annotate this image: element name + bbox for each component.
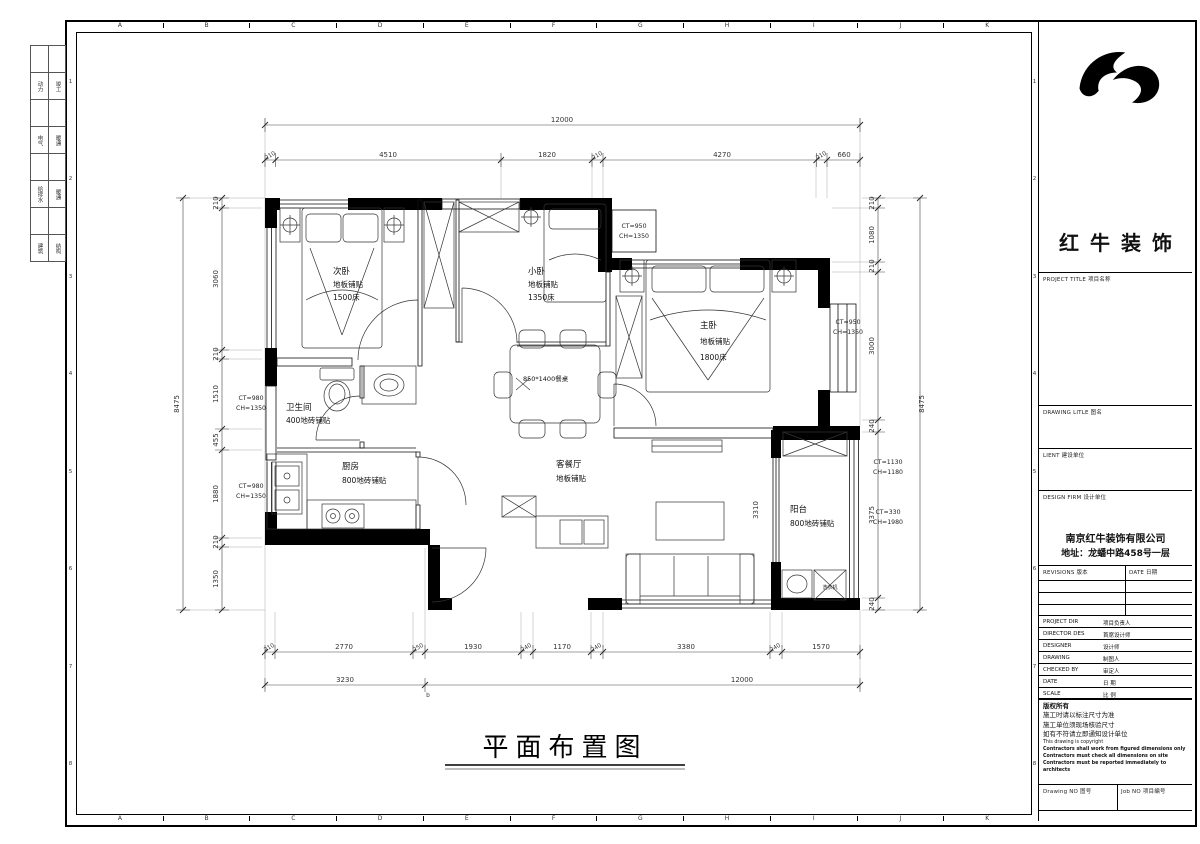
tb-copyright-block: 版权所有施工时请以标注尺寸为准施工单位须现场核验尺寸如有不符请立即通知设计单位T… [1043, 702, 1188, 774]
svg-text:1880: 1880 [212, 485, 220, 503]
tb-staff-row: DRAWING制图人 [1039, 651, 1192, 663]
tb-number-row: Drawing NO 图号 Job NO 项目编号 [1039, 784, 1192, 810]
tb-drawing-title-label: DRAWING LITLE 图名 [1043, 408, 1102, 416]
tb-project-title-label: PROJECT TITLE 项目名称 [1043, 275, 1111, 283]
svg-text:CT=950: CT=950 [835, 319, 860, 326]
tb-client-box: LIENT 建设单位 [1039, 448, 1192, 490]
svg-text:1350床: 1350床 [528, 292, 555, 302]
svg-text:4510: 4510 [379, 151, 397, 159]
svg-text:12000: 12000 [551, 116, 573, 124]
door-secondary-bedroom [358, 300, 418, 360]
tb-staff-row: DATE日 期 [1039, 675, 1192, 687]
door-entry [432, 548, 486, 602]
svg-text:4270: 4270 [713, 151, 731, 159]
tb-drawing-no-label: Drawing NO 图号 [1043, 787, 1091, 795]
tb-staff-label: DATE [1043, 679, 1103, 687]
svg-text:CT=1130: CT=1130 [873, 459, 902, 466]
tb-staff-label: DESIGNER [1043, 643, 1103, 651]
svg-text:3380: 3380 [677, 643, 695, 651]
bed-secondary [280, 208, 404, 348]
tb-copyright-line-zh: 版权所有 [1043, 702, 1188, 711]
svg-text:1500床: 1500床 [333, 292, 360, 302]
svg-text:12000: 12000 [731, 676, 753, 684]
svg-text:3000: 3000 [868, 337, 876, 355]
svg-text:240: 240 [868, 419, 876, 432]
tb-client-label: LIENT 建设单位 [1043, 451, 1084, 459]
svg-text:210: 210 [868, 259, 876, 272]
svg-text:地板铺贴: 地板铺贴 [528, 279, 558, 289]
tb-revision-row [1039, 604, 1192, 615]
tb-copyright-line-en: Contractors must be reported immediately… [1043, 761, 1188, 775]
svg-text:240: 240 [868, 597, 876, 610]
tb-copyright-line-zh: 施工单位须现场核验尺寸 [1043, 721, 1188, 730]
svg-text:1510: 1510 [212, 385, 220, 403]
tb-staff-label: 首席设计师 [1103, 631, 1131, 639]
svg-text:800地砖铺贴: 800地砖铺贴 [342, 475, 387, 485]
svg-text:CH=1350: CH=1350 [619, 233, 649, 240]
svg-text:1570: 1570 [812, 643, 830, 651]
title-block: 红牛装饰 PROJECT TITLE 项目名称 DRAWING LITLE 图名… [1038, 22, 1192, 821]
svg-text:小卧: 小卧 [528, 266, 546, 277]
svg-text:2770: 2770 [335, 643, 353, 651]
tb-staff-label: DRAWING [1043, 655, 1103, 663]
sheet-title: 平面布置图 [445, 733, 685, 769]
svg-text:阳台: 阳台 [790, 504, 807, 515]
svg-text:CH=1980: CH=1980 [873, 519, 903, 526]
svg-text:850*1400餐桌: 850*1400餐桌 [523, 374, 569, 383]
svg-text:1820: 1820 [538, 151, 556, 159]
tb-job-no-label: Job NO 项目编号 [1121, 787, 1166, 795]
svg-text:CH=1350: CH=1350 [236, 493, 266, 500]
svg-text:CH=1180: CH=1180 [873, 469, 903, 476]
tb-copyright-line-zh: 施工时请以标注尺寸为准 [1043, 711, 1188, 720]
tb-project-title-box: PROJECT TITLE 项目名称 [1039, 272, 1192, 405]
svg-text:1080: 1080 [868, 226, 876, 244]
tb-copyright-line-en: This drawing is copyright [1043, 740, 1188, 747]
tb-revisions-header: REVISIONS 版本 DATE 日期 [1039, 565, 1192, 580]
svg-text:客餐厅: 客餐厅 [556, 459, 582, 470]
svg-text:455: 455 [212, 433, 220, 446]
svg-text:210: 210 [212, 347, 220, 360]
svg-text:1350: 1350 [212, 570, 220, 588]
tb-staff-row: PROJECT DIR项目负责人 [1039, 615, 1192, 627]
svg-text:主卧: 主卧 [700, 320, 718, 331]
tb-staff-label: 项目负责人 [1103, 619, 1131, 627]
tb-drawing-title-box: DRAWING LITLE 图名 [1039, 405, 1192, 448]
drawing-sheet: { "sheet": { "grid_letters": ["A","B","C… [0, 0, 1200, 844]
svg-text:210: 210 [212, 535, 220, 548]
svg-text:660: 660 [837, 151, 850, 159]
tb-staff-label: 设计师 [1103, 643, 1120, 651]
svg-text:洗衣机: 洗衣机 [822, 584, 837, 591]
svg-text:CH=1350: CH=1350 [833, 329, 863, 336]
tb-staff-label: CHECKED BY [1043, 667, 1103, 675]
tb-staff-label: 日 期 [1103, 679, 1116, 687]
tb-design-firm-label: DESIGN FIRM 设计单位 [1043, 493, 1106, 501]
svg-text:CH=1350: CH=1350 [236, 405, 266, 412]
tb-staff-label: 审定人 [1103, 667, 1120, 675]
svg-text:CT=980: CT=980 [238, 483, 263, 490]
tb-copyright-line-en: Contractors shall work from figured dime… [1043, 747, 1188, 754]
svg-text:CT=950: CT=950 [621, 223, 646, 230]
door-kitchen [418, 457, 466, 505]
svg-text:卫生间: 卫生间 [286, 402, 312, 413]
tb-staff-label: DIRECTOR DES [1043, 631, 1103, 639]
living-furniture [502, 496, 754, 604]
svg-text:CT=330: CT=330 [875, 509, 900, 516]
floor-plan: 12000 210 4510 1820 210 4270 210 660 210… [0, 0, 1040, 844]
tb-revision-row [1039, 592, 1192, 604]
balcony-fixtures [782, 432, 847, 600]
tb-copyright-line-en: Contractors must check all dimensions on… [1043, 754, 1188, 761]
svg-text:厨房: 厨房 [342, 461, 359, 472]
tb-staff-label: PROJECT DIR [1043, 619, 1103, 627]
svg-text:3060: 3060 [212, 270, 220, 288]
tb-date-label: DATE 日期 [1129, 568, 1157, 576]
doors [316, 288, 656, 602]
svg-text:1800床: 1800床 [700, 352, 727, 362]
svg-text:3310: 3310 [752, 501, 760, 519]
tb-revisions-label: REVISIONS 版本 [1043, 568, 1088, 576]
svg-text:400地砖铺贴: 400地砖铺贴 [286, 415, 331, 425]
tb-staff-label: 制图人 [1103, 655, 1120, 663]
company-brand: 红牛装饰 [1039, 227, 1192, 256]
svg-text:1170: 1170 [553, 643, 571, 651]
door-master-bedroom [614, 384, 656, 426]
svg-text:地板铺贴: 地板铺贴 [700, 336, 730, 346]
tb-copyright-line-zh: 如有不符请立即通知设计单位 [1043, 730, 1188, 739]
tb-footer-box [1039, 810, 1192, 821]
company-name: 南京红牛装饰有限公司 [1039, 530, 1192, 545]
svg-text:1930: 1930 [464, 643, 482, 651]
company-logo-icon [1067, 40, 1167, 120]
svg-text:800地砖铺贴: 800地砖铺贴 [790, 518, 835, 528]
tb-staff-row: CHECKED BY审定人 [1039, 663, 1192, 675]
svg-text:CT=980: CT=980 [238, 395, 263, 402]
svg-text:地板铺贴: 地板铺贴 [333, 279, 363, 289]
svg-text:次卧: 次卧 [333, 266, 351, 277]
tb-staff-row: DIRECTOR DES首席设计师 [1039, 627, 1192, 639]
svg-text:地板铺贴: 地板铺贴 [556, 473, 586, 483]
svg-text:b: b [426, 693, 430, 699]
svg-text:210: 210 [868, 196, 876, 209]
svg-text:平面布置图: 平面布置图 [482, 733, 647, 763]
svg-text:3230: 3230 [336, 676, 354, 684]
company-address: 地址：龙蟠中路458号一层 [1039, 546, 1192, 559]
svg-text:8475: 8475 [918, 395, 926, 413]
wardrobe-hall [424, 202, 454, 308]
svg-text:8475: 8475 [173, 395, 181, 413]
tb-thick-divider [1039, 698, 1192, 700]
door-small-bedroom [462, 288, 517, 343]
svg-text:210: 210 [212, 196, 220, 209]
tb-staff-row: DESIGNER设计师 [1039, 639, 1192, 651]
tb-number-divider [1117, 785, 1118, 810]
tb-revision-row [1039, 580, 1192, 592]
